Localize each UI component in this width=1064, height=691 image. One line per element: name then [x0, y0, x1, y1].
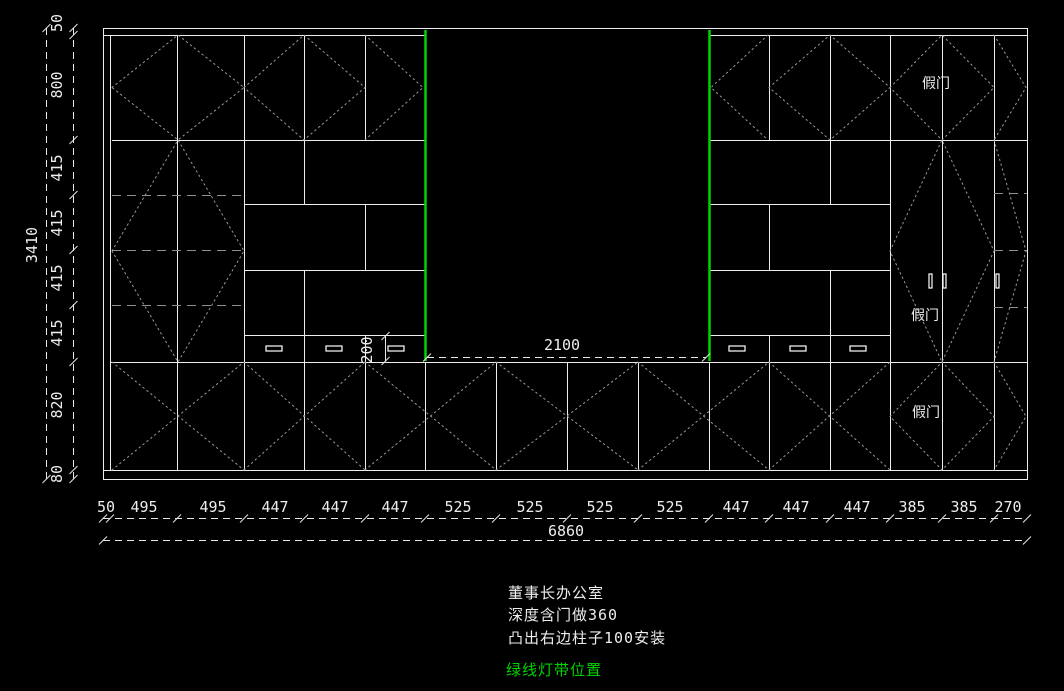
- dimension-chain-labels: 5049549544744744752552552552544744744738…: [48, 14, 1022, 516]
- drawer-handle: [850, 346, 866, 351]
- dim-label: 447: [321, 498, 348, 516]
- dim-label: 385: [898, 498, 925, 516]
- dim-tick: [1023, 515, 1031, 523]
- dim-label: 820: [48, 391, 66, 418]
- bottom-total-label: 6860: [548, 522, 584, 540]
- drawer-handle: [326, 346, 342, 351]
- dim-label: 80: [48, 465, 66, 483]
- dim-label: 447: [722, 498, 749, 516]
- dim-label: 50: [97, 498, 115, 516]
- dim-label: 447: [782, 498, 809, 516]
- dim-label: 415: [48, 264, 66, 291]
- dim-label: 50: [48, 14, 66, 32]
- drawer-height-label: 200: [358, 336, 376, 363]
- dim-label: 415: [48, 154, 66, 181]
- dim-label: 495: [199, 498, 226, 516]
- dim-label: 447: [381, 498, 408, 516]
- drawer-handle: [388, 346, 404, 351]
- dim-label: 525: [516, 498, 543, 516]
- cad-canvas: 5049549544744744752552552552544744744738…: [0, 0, 1064, 691]
- light-strips: [426, 30, 710, 361]
- dim-label: 415: [48, 319, 66, 346]
- dim-label: 415: [48, 209, 66, 236]
- dim-label: 525: [444, 498, 471, 516]
- door-handle: [996, 274, 999, 288]
- door-handle: [943, 274, 946, 288]
- dim-label: 525: [586, 498, 613, 516]
- bottom-row-doors: [112, 362, 1026, 470]
- drawer-handle: [266, 346, 282, 351]
- top-row-doors: [112, 35, 1026, 140]
- dim-label: 385: [950, 498, 977, 516]
- cabinet-structure: [103, 29, 1028, 480]
- niche-width-label: 2100: [544, 336, 580, 354]
- horizontal-panels: [103, 36, 1027, 471]
- left-total-label: 3410: [23, 227, 41, 263]
- notes-block: 董事长办公室 深度含门做360 凸出右边柱子100安装 绿线灯带位置: [506, 584, 666, 679]
- dim-label: 495: [130, 498, 157, 516]
- door-handle: [929, 274, 932, 288]
- dim-label: 447: [261, 498, 288, 516]
- note-line-3: 凸出右边柱子100安装: [508, 629, 666, 647]
- dim-tick: [1023, 537, 1031, 545]
- drawer-handle: [729, 346, 745, 351]
- cad-elevation-drawing: 5049549544744744752552552552544744744738…: [0, 0, 1064, 691]
- fake-door-label-bottom: 假门: [912, 405, 940, 421]
- dimension-lines: [47, 28, 1028, 541]
- dim-label: 447: [843, 498, 870, 516]
- middle-tall-doors: [112, 140, 1026, 362]
- fake-door-label-middle: 假门: [911, 308, 939, 324]
- note-line-2: 深度含门做360: [508, 606, 618, 624]
- dimension-ticks: [43, 24, 1032, 545]
- note-green-light-strip: 绿线灯带位置: [506, 661, 602, 679]
- fake-door-label-top: 假门: [922, 76, 950, 92]
- door-swing-symbols: [112, 35, 1026, 470]
- note-line-1: 董事长办公室: [508, 584, 604, 602]
- drawer-handle: [790, 346, 806, 351]
- dim-label: 270: [994, 498, 1021, 516]
- dim-label: 800: [48, 71, 66, 98]
- dim-label: 525: [656, 498, 683, 516]
